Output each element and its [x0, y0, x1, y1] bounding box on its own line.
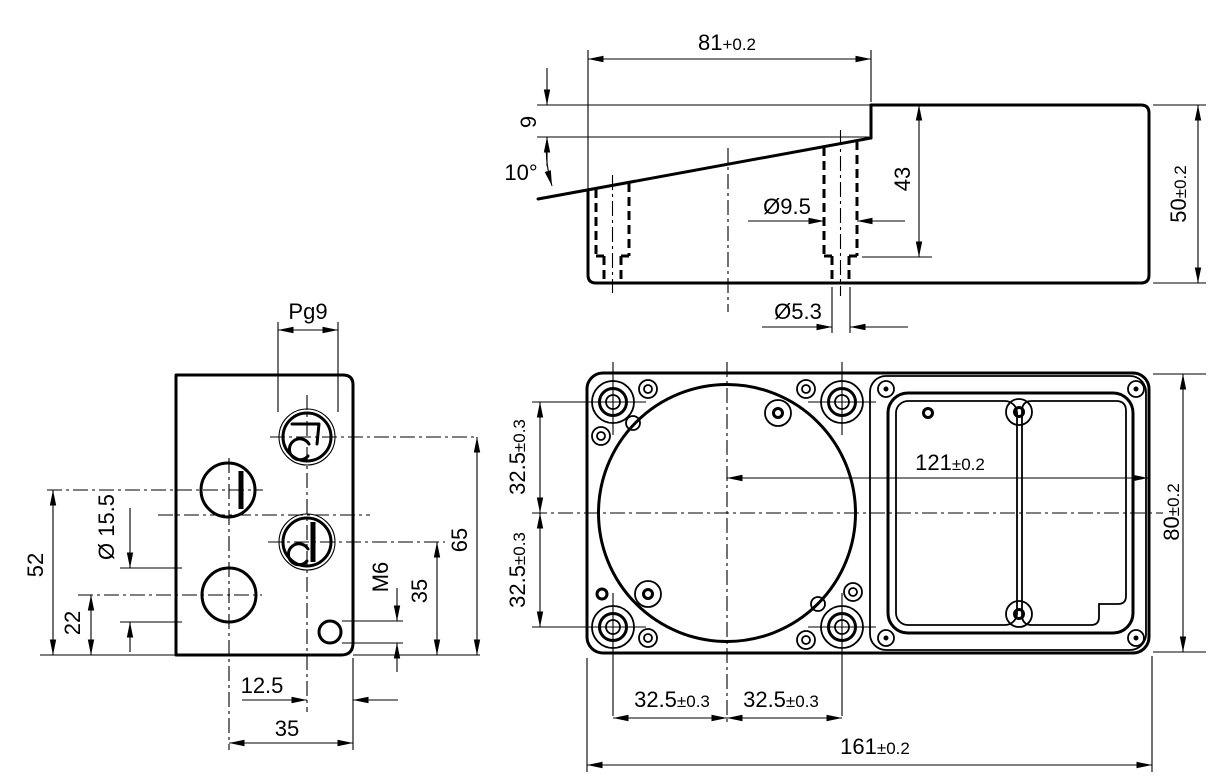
dim-dia-15-5: Ø 15.5 [94, 494, 130, 652]
dim-121: 121±0.2 [727, 450, 1148, 478]
end-view: Pg9 52 22 Ø 15.5 12.5 35 M6 [23, 299, 480, 750]
recess-small-hole [924, 409, 933, 418]
dim-dia-9-5-label: Ø9.5 [763, 194, 811, 219]
corner-hole-crosshairs [532, 362, 876, 716]
dim-pg9: Pg9 [278, 299, 338, 330]
dim-80-label: 80±0.2 [1159, 483, 1184, 540]
dim-dia-5-3: Ø5.3 [762, 287, 908, 333]
dim-52: 52 [23, 490, 53, 655]
dim-35-right: 35 [407, 542, 437, 655]
dim-9: 9 [516, 68, 547, 166]
dim-81-label: 81+0.2 [698, 30, 756, 55]
dim-10deg: 10° [504, 140, 552, 186]
dim-12-5-label: 12.5 [241, 673, 284, 698]
dim-10deg-label: 10° [504, 160, 537, 185]
dim-121-label: 121±0.2 [915, 450, 985, 475]
dim-32-5-bottom-right: 32.5±0.3 [727, 687, 842, 718]
plan-view: 121±0.2 80±0.2 32.5±0.3 32.5±0.3 32.5±0.… [505, 362, 1206, 772]
dim-43-label: 43 [890, 167, 915, 191]
drawing-canvas: 81+0.2 9 10° Ø9.5 43 Ø5.3 [0, 0, 1228, 780]
dim-32-5-bottom-left-label: 32.5±0.3 [634, 687, 710, 712]
side-view-hidden-holes [596, 141, 857, 283]
dim-65: 65 [447, 437, 477, 655]
dim-161: 161±0.2 [587, 656, 1152, 772]
dim-81: 81+0.2 [588, 30, 871, 190]
dim-32-5-bottom-right-label: 32.5±0.3 [743, 687, 819, 712]
side-view-reference-lines [537, 105, 871, 137]
dim-m6-label: M6 [368, 562, 393, 593]
dim-32-5-left-upper: 32.5±0.3 [505, 402, 540, 513]
side-view-outline [538, 105, 1149, 283]
dim-32-5-bottom-left: 32.5±0.3 [613, 687, 727, 718]
dim-32-5-left-lower: 32.5±0.3 [505, 513, 540, 627]
dim-pg9-label: Pg9 [288, 299, 327, 324]
dim-9-label: 9 [516, 116, 541, 128]
technical-drawing-page: 81+0.2 9 10° Ø9.5 43 Ø5.3 [0, 0, 1228, 780]
m6-hole [319, 621, 341, 643]
dim-35-bottom-label: 35 [275, 716, 299, 741]
bore-bosses [626, 400, 825, 611]
plan-view-centerlines [532, 362, 1163, 722]
side-view: 81+0.2 9 10° Ø9.5 43 Ø5.3 [504, 30, 1206, 333]
dim-dia-5-3-label: Ø5.3 [774, 299, 822, 324]
dim-65-label: 65 [447, 528, 472, 552]
dim-50: 50±0.2 [1153, 105, 1206, 283]
dim-32-5-left-upper-label: 32.5±0.3 [505, 419, 530, 495]
dim-dia-15-5-label: Ø 15.5 [94, 494, 119, 560]
dim-22-label: 22 [60, 611, 85, 635]
dim-35-bottom: 35 [229, 716, 353, 743]
dim-161-label: 161±0.2 [840, 734, 910, 759]
dim-32-5-left-lower-label: 32.5±0.3 [505, 532, 530, 608]
dim-50-label: 50±0.2 [1166, 165, 1191, 222]
dim-52-label: 52 [23, 553, 48, 577]
dim-12-5: 12.5 [241, 673, 398, 700]
dim-22: 22 [60, 595, 91, 655]
dim-35-right-label: 35 [407, 579, 432, 603]
dim-dia-9-5: Ø9.5 [748, 194, 905, 221]
